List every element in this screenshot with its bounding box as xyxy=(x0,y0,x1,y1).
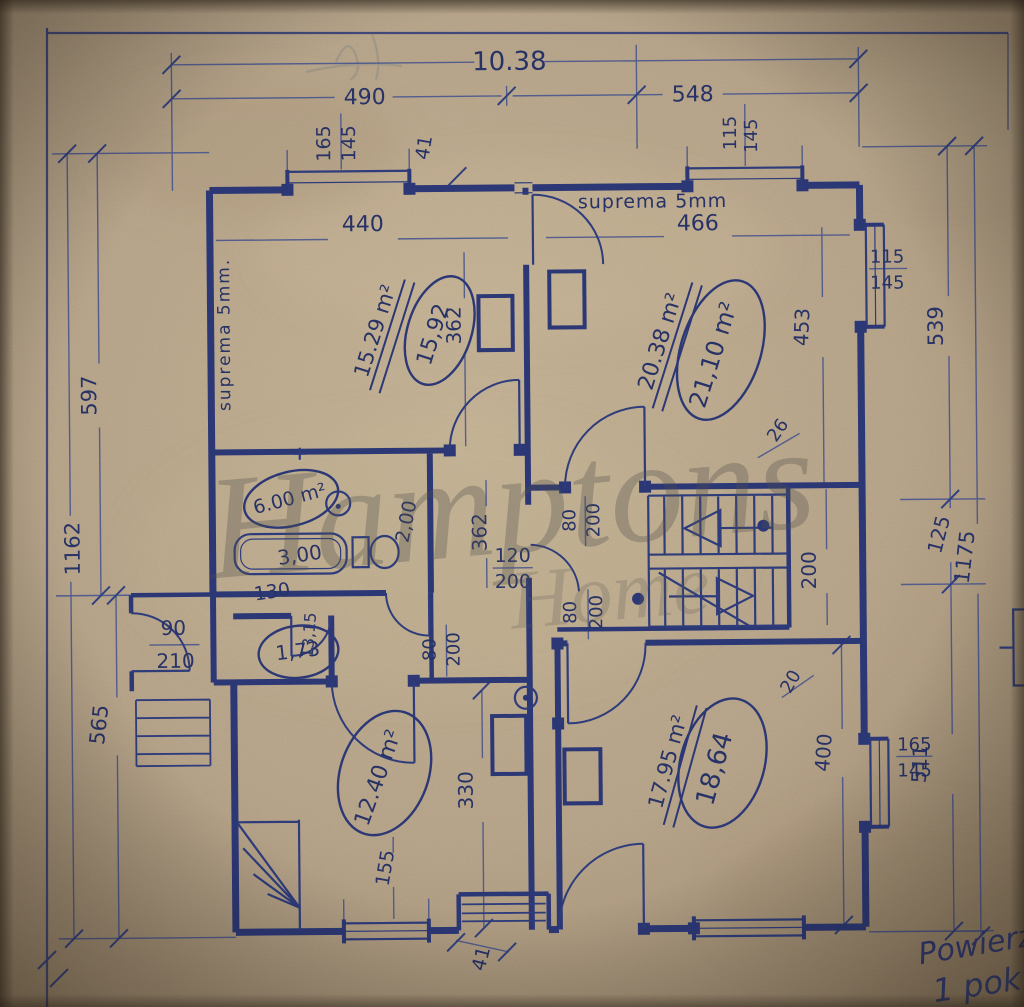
edge-shadow-right xyxy=(1010,0,1024,1007)
edge-shadow-bottom xyxy=(0,994,1024,1007)
edge-shadow-left xyxy=(0,0,14,1007)
watermark-word2: Home xyxy=(505,538,714,648)
edge-shadow-top xyxy=(0,0,1024,14)
floor-plan-photo: 10.38 490 548 165 145 41 115 145 440 466… xyxy=(0,0,1024,1007)
floor-plan-svg: 10.38 490 548 165 145 41 115 145 440 466… xyxy=(0,0,1024,1007)
